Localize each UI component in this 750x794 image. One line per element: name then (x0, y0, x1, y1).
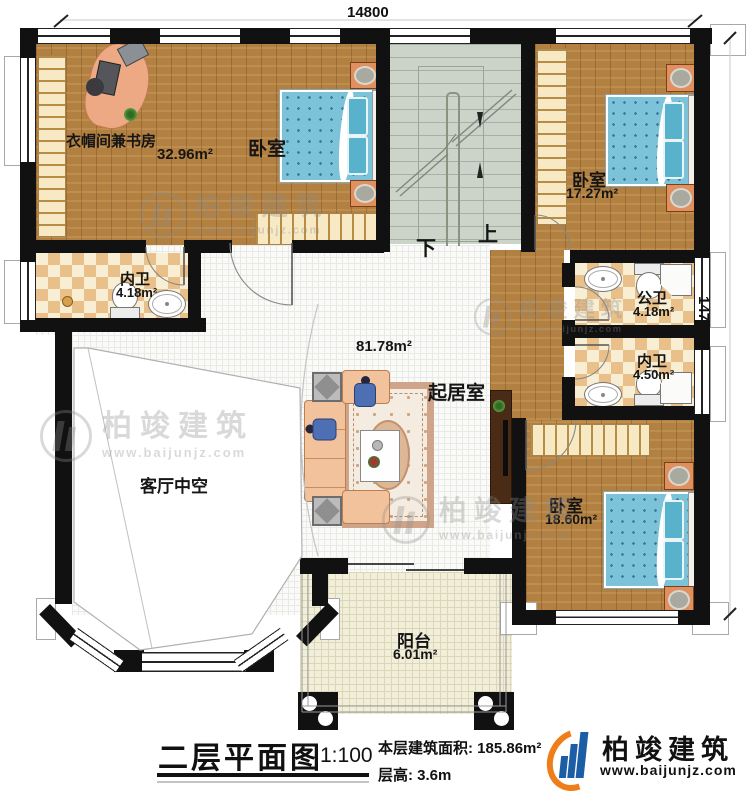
window-sill (710, 252, 726, 328)
balcony-column (298, 692, 338, 730)
wall-stair-left (376, 44, 390, 252)
person (306, 419, 337, 441)
nightstand (666, 64, 696, 92)
title-underline-2 (157, 781, 369, 783)
wall-bath-left-right (188, 253, 201, 332)
room-label-void: 客厅中空 (140, 472, 208, 497)
room-area-bedroom-tr: 17.27m² (566, 185, 618, 201)
wall-balcony-top-right (464, 558, 512, 574)
window-sill (710, 346, 726, 422)
stair-label-down: 下 (416, 232, 436, 261)
window (556, 28, 690, 44)
title-underline (157, 773, 369, 777)
wall-void-left (55, 332, 72, 604)
nightstand (664, 462, 694, 490)
sofa-chair (342, 490, 390, 524)
wall-room1-bottom-a (20, 240, 146, 253)
room-area-balcony: 6.01m² (393, 646, 437, 662)
wall-bedroom-br-left (512, 418, 526, 612)
wall-baths-left-a (562, 263, 575, 287)
wall-room1-bottom-c (292, 240, 384, 253)
room-label-living: 起居室 (428, 378, 485, 405)
window (290, 28, 340, 44)
window (20, 58, 36, 162)
plant (493, 400, 505, 412)
bed-study-room (280, 90, 382, 182)
wall-room1-bottom-b (184, 240, 232, 253)
wall-bath-public-top (570, 250, 710, 263)
floor-drain (62, 296, 73, 307)
plan-title: 二层平面图 (158, 733, 323, 777)
window (20, 262, 36, 320)
bed-bedroom-tr (606, 95, 698, 186)
window-sill (710, 24, 746, 56)
sink (584, 382, 622, 407)
room-area-living: 81.78m² (356, 338, 412, 355)
room-area-bath-left: 4.18m² (116, 285, 157, 300)
room-area-bath-right: 4.50m² (633, 367, 674, 382)
wall-bath-right-bottom (562, 406, 710, 420)
balcony-column (474, 692, 514, 730)
wardrobe (537, 48, 567, 225)
room-area-bath-public: 4.18m² (633, 304, 674, 319)
window (556, 610, 678, 625)
room-label-study: 衣帽间兼书房 (66, 130, 156, 151)
table-decor (372, 440, 383, 451)
stair-label-up: 上 (478, 218, 498, 247)
sink (584, 266, 622, 292)
floor-plan-page: 衣帽间兼书房 32.96m² 卧室 卧室 17.27m² 内卫 4.18m² 公… (0, 0, 750, 794)
floor-area-note: 本层建筑面积: 185.86m² (378, 737, 541, 758)
table-flowers (368, 456, 380, 468)
window (694, 350, 710, 414)
sofa-long (304, 400, 346, 502)
window (38, 28, 110, 44)
room-area-bedroom-br: 18.60m² (545, 511, 597, 527)
brand-url: www.baijunjz.com (600, 762, 737, 778)
wall-bath-left-bottom (20, 318, 206, 332)
plant (124, 108, 137, 121)
ottoman (312, 372, 342, 402)
wardrobe (38, 55, 66, 237)
window (160, 28, 240, 44)
ottoman (312, 496, 342, 526)
wall-stair-right (521, 44, 535, 252)
window (390, 28, 470, 44)
tv (503, 420, 508, 476)
dimension-right: 14700 (695, 296, 712, 338)
person (354, 376, 376, 407)
wall-bay-right-vert (312, 558, 328, 606)
wall-baths-left-c (562, 377, 575, 407)
baijun-logo-icon (548, 724, 598, 786)
coffee-table (360, 430, 400, 482)
room-area-study: 32.96m² (157, 146, 213, 163)
desk-chair (86, 78, 104, 96)
window-bay-bottom (142, 652, 246, 672)
nightstand (666, 184, 696, 212)
floor-height-note: 层高: 3.6m (378, 764, 451, 785)
room-label-bedroom-tl: 卧室 (248, 134, 286, 161)
bed-bedroom-br (604, 492, 698, 588)
wardrobe (530, 424, 650, 456)
plan-scale: 1:100 (320, 744, 373, 768)
wall-between-baths (562, 325, 710, 338)
dimension-top: 14800 (347, 4, 389, 21)
stair-handrail (446, 92, 460, 246)
